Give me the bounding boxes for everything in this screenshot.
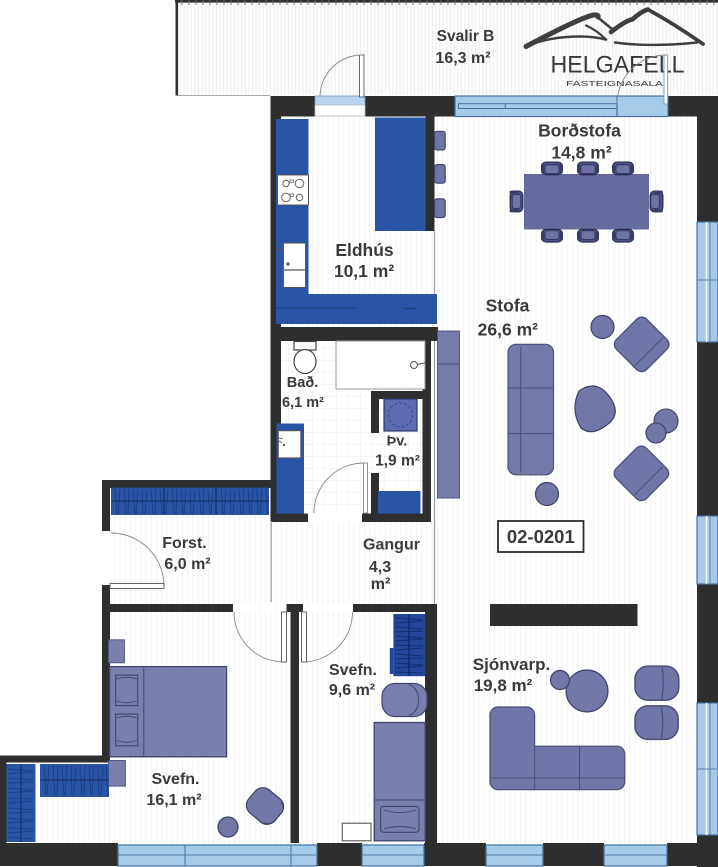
- svg-text:6,0 m²: 6,0 m²: [164, 556, 210, 573]
- svg-text:16,3 m²: 16,3 m²: [435, 50, 490, 67]
- svg-text:Stofa: Stofa: [486, 296, 530, 316]
- svg-text:FASTEIGNASALA: FASTEIGNASALA: [566, 79, 663, 88]
- svg-text:Eldhús: Eldhús: [335, 240, 394, 260]
- svg-text:16,1 m²: 16,1 m²: [146, 792, 201, 809]
- svg-text:4,3: 4,3: [369, 559, 391, 576]
- svg-text:Forst.: Forst.: [162, 535, 206, 552]
- svg-text:Gangur: Gangur: [363, 537, 420, 554]
- svg-text:02-0201: 02-0201: [507, 526, 575, 547]
- svg-text:Bað.: Bað.: [287, 375, 318, 391]
- svg-text:Svefn.: Svefn.: [151, 771, 199, 788]
- svg-text:m²: m²: [371, 576, 391, 593]
- svg-text:Sjónvarp.: Sjónvarp.: [473, 655, 550, 674]
- svg-text:26,6 m²: 26,6 m²: [478, 320, 538, 340]
- svg-text:9,6 m²: 9,6 m²: [329, 682, 375, 699]
- svg-text:6,1 m²: 6,1 m²: [282, 395, 324, 411]
- svg-text:Svalir B: Svalir B: [437, 28, 495, 45]
- svg-text:Borðstofa: Borðstofa: [538, 121, 621, 141]
- svg-text:1,9 m²: 1,9 m²: [375, 453, 420, 470]
- svg-text:Svefn.: Svefn.: [329, 662, 377, 679]
- svg-text:10,1 m²: 10,1 m²: [334, 261, 394, 281]
- svg-text:14,8 m²: 14,8 m²: [551, 143, 611, 163]
- svg-text:19,8 m²: 19,8 m²: [474, 676, 533, 695]
- svg-text:Þv.: Þv.: [387, 434, 408, 450]
